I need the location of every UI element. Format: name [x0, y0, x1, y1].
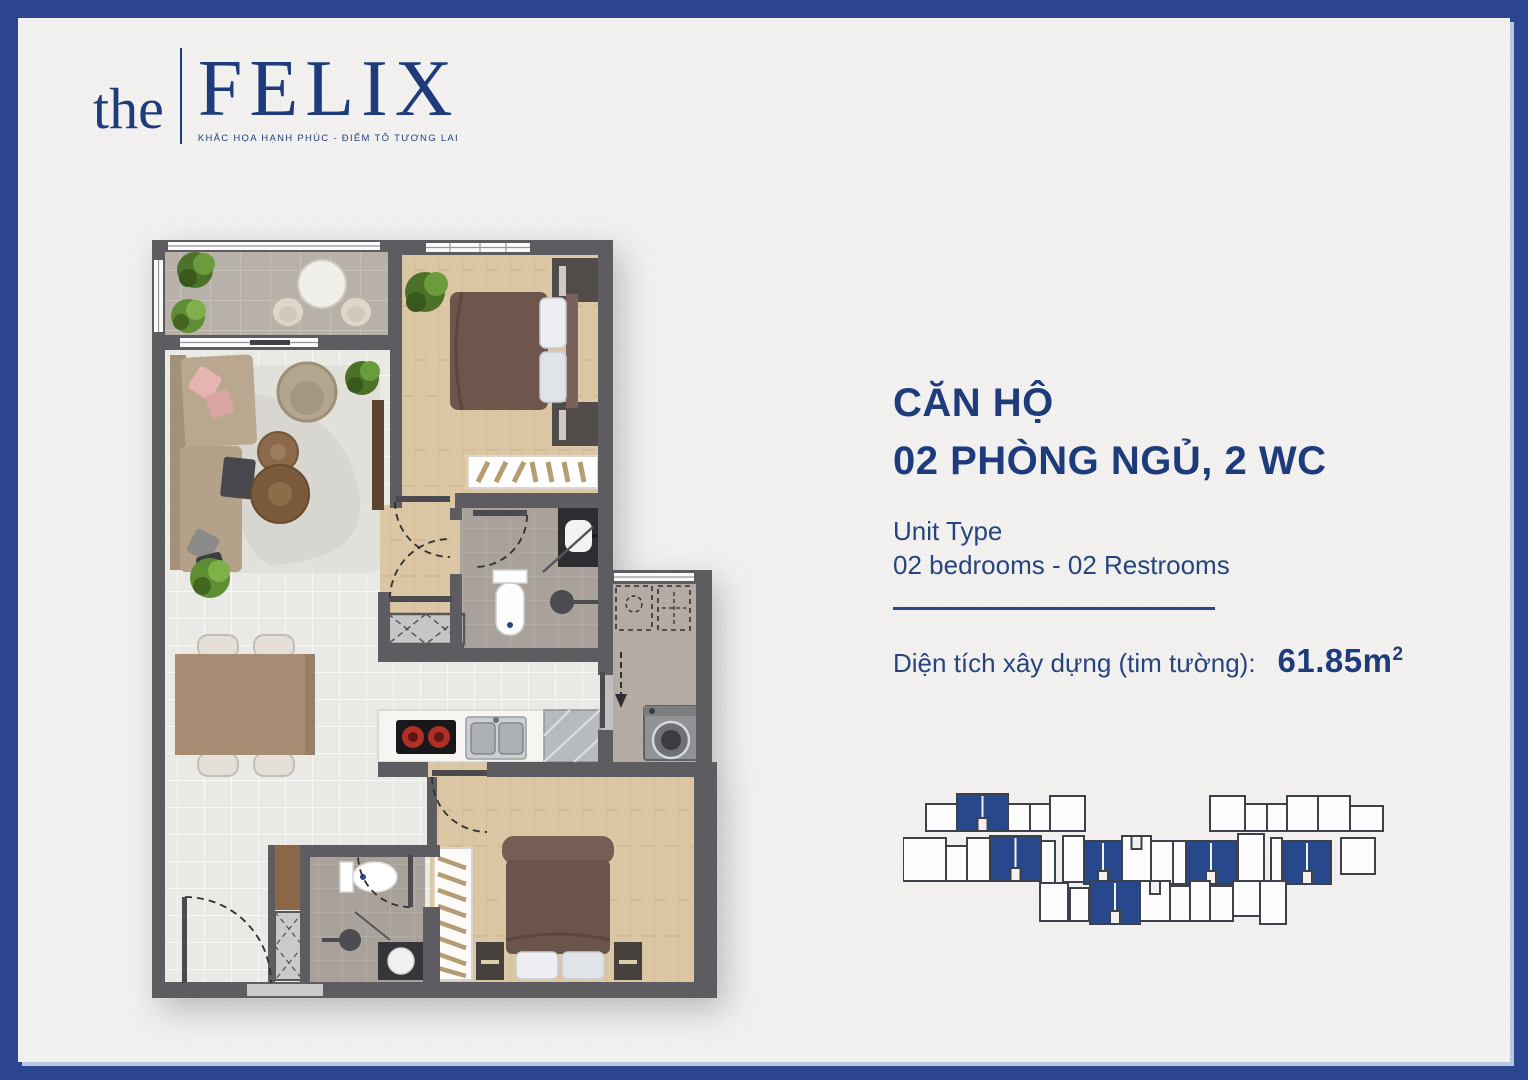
kitchen-corridor-floor	[390, 662, 600, 710]
floorplan	[150, 240, 720, 1000]
toilet2-bowl	[353, 862, 397, 892]
toilet1-button	[507, 622, 513, 628]
keyplan-block-notch	[1011, 868, 1021, 881]
keyplan-block	[1070, 888, 1089, 921]
wall	[696, 570, 712, 766]
bed2-pillow	[516, 952, 558, 979]
keyplan-block	[1040, 883, 1068, 921]
door-leaf	[396, 496, 450, 502]
dining-area	[175, 635, 315, 776]
keyplan-block	[1063, 836, 1084, 882]
burner-center	[408, 732, 418, 742]
keyplan-block	[1245, 804, 1267, 831]
keyplan-block	[1030, 804, 1050, 831]
bed2-bolster	[502, 836, 614, 864]
wall	[378, 762, 428, 777]
dining-chair	[254, 753, 294, 776]
keyplan-block	[1287, 796, 1318, 831]
wall	[378, 644, 464, 662]
keyplan-block-notch	[1302, 871, 1312, 884]
entry-cabinet-wood	[275, 845, 303, 910]
wall	[427, 777, 437, 847]
unit-type: Unit Type 02 bedrooms - 02 Restrooms	[893, 514, 1453, 583]
bed1-pillow	[540, 352, 566, 402]
dining-chair	[198, 753, 238, 776]
wall	[598, 730, 613, 766]
door-leaf	[390, 596, 452, 602]
wardrobe1-light	[559, 266, 566, 296]
door-leaf	[182, 897, 187, 983]
unit-info-panel: CĂN HỘ 02 PHÒNG NGỦ, 2 WC Unit Type 02 b…	[893, 374, 1453, 680]
area-row: Diện tích xây dựng (tim tường): 61.85m2	[893, 642, 1453, 680]
wall	[598, 240, 613, 663]
wall	[390, 350, 402, 508]
area-label: Diện tích xây dựng (tim tường):	[893, 648, 1256, 679]
keyplan-block	[1170, 886, 1190, 921]
area-value: 61.85m2	[1278, 642, 1404, 680]
wall	[300, 845, 440, 857]
toilet1-tank	[493, 570, 527, 583]
kitchen	[378, 710, 600, 762]
divider-line	[893, 607, 1215, 610]
keyplan-block	[1210, 796, 1245, 831]
toilet2-button	[360, 874, 366, 880]
wall	[694, 762, 717, 992]
wardrobe1-light	[559, 410, 566, 440]
paper-background: the FELIX KHẮC HỌA HẠNH PHÚC - ĐIỂM TÔ T…	[18, 18, 1510, 1062]
keyplan-block	[1210, 886, 1233, 921]
logo-name: FELIX	[198, 52, 460, 127]
keyplan-block	[1050, 796, 1085, 831]
wall	[300, 845, 310, 982]
wall	[455, 493, 613, 508]
keyplan-block	[1233, 881, 1260, 916]
unit-title: CĂN HỘ 02 PHÒNG NGỦ, 2 WC	[893, 374, 1453, 490]
dining-table	[175, 654, 315, 755]
balcony-chair-seat	[279, 306, 297, 322]
logo-divider-bar	[180, 48, 182, 144]
bed2-blanket	[506, 860, 610, 954]
bench-runner	[468, 456, 598, 488]
unit-type-value: 02 bedrooms - 02 Restrooms	[893, 548, 1453, 582]
nightstand-light	[481, 960, 499, 964]
sink-basin	[499, 723, 523, 754]
door-leaf	[600, 672, 605, 728]
logo-prefix: the	[93, 80, 164, 144]
wall	[423, 907, 440, 982]
unit-title-line2: 02 PHÒNG NGỦ, 2 WC	[893, 432, 1453, 490]
coffee-table-small-top	[270, 444, 286, 460]
keyplan-block-notch	[1132, 836, 1142, 849]
balcony-chair-seat	[347, 306, 365, 322]
plant	[190, 558, 230, 598]
wall	[450, 508, 462, 520]
entry-threshold	[247, 984, 323, 996]
keyplan-block	[1173, 841, 1186, 884]
wall	[388, 240, 402, 350]
keyplan-block	[1008, 804, 1030, 831]
keyplan-block	[946, 846, 967, 881]
keyplan-block	[1341, 838, 1375, 874]
balcony-table	[298, 260, 346, 308]
stainless-counter	[544, 710, 600, 762]
keyplan-block	[1267, 804, 1287, 831]
wall	[152, 982, 717, 998]
bed2-pillow	[562, 952, 604, 979]
lounge-chair-seat	[290, 381, 324, 415]
bath2-sink	[388, 948, 414, 974]
keyplan-block	[1271, 838, 1282, 884]
sink-basin	[471, 723, 495, 754]
keyplan-block-notch	[1150, 881, 1160, 894]
coffee-table-large-top	[268, 482, 292, 506]
keyplan-block	[967, 838, 990, 881]
bed1-blanket	[450, 292, 548, 410]
nightstand-light	[619, 960, 637, 964]
wall	[152, 252, 165, 997]
keyplan-block	[1151, 841, 1173, 884]
keyplan-svg	[903, 788, 1403, 933]
unit-type-label: Unit Type	[893, 514, 1453, 548]
keyplan-block-notch	[1110, 911, 1120, 924]
burner-center	[434, 732, 444, 742]
tv-console	[372, 400, 384, 510]
sink-faucet	[493, 717, 499, 723]
bed1-headboard	[566, 294, 578, 408]
unit-title-line1: CĂN HỘ	[893, 374, 1453, 432]
keyplan-block	[1318, 796, 1350, 831]
keyplan-block	[903, 838, 946, 881]
brand-logo: the FELIX KHẮC HỌA HẠNH PHÚC - ĐIỂM TÔ T…	[93, 48, 460, 144]
slider-handle	[250, 340, 290, 345]
door-leaf	[473, 510, 527, 516]
wall	[450, 648, 613, 662]
entry-cabinet-tall	[275, 912, 303, 980]
dining-table-edge	[305, 654, 315, 755]
bed1-pillow	[540, 298, 566, 348]
washing-machine	[644, 706, 698, 760]
door-leaf	[432, 770, 487, 776]
keyplan-block	[926, 804, 957, 831]
keyplan-block	[1238, 834, 1264, 884]
keyplan-block	[1350, 806, 1383, 831]
keyplan-block-notch	[978, 818, 988, 831]
keyplan-block	[1041, 841, 1055, 886]
door-leaf	[408, 855, 413, 907]
logo-tagline: KHẮC HỌA HẠNH PHÚC - ĐIỂM TÔ TƯƠNG LAI	[198, 133, 460, 144]
keyplan-block	[1260, 881, 1286, 924]
wardrobe1-bottom	[552, 402, 598, 446]
keyplan-block	[1190, 881, 1210, 921]
toilet2-tank	[340, 862, 353, 892]
